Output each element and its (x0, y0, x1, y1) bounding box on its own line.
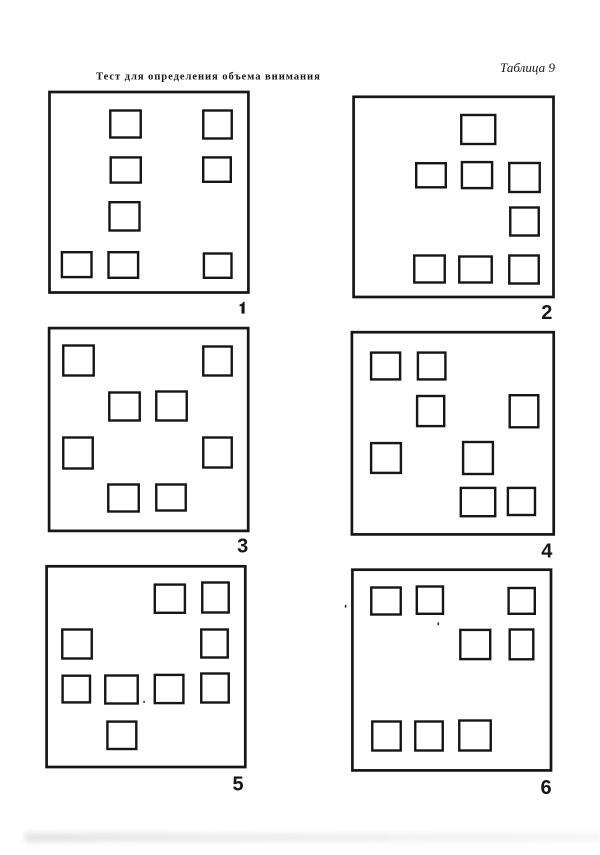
svg-text:Таблица 9: Таблица 9 (500, 60, 556, 75)
svg-text:3: 3 (237, 536, 248, 558)
svg-text:2: 2 (541, 302, 552, 324)
svg-text:4: 4 (541, 541, 553, 563)
svg-text:Тест для определения объема вн: Тест для определения объема внимания (96, 72, 320, 83)
svg-text:5: 5 (232, 774, 243, 796)
svg-text:6: 6 (540, 777, 551, 799)
